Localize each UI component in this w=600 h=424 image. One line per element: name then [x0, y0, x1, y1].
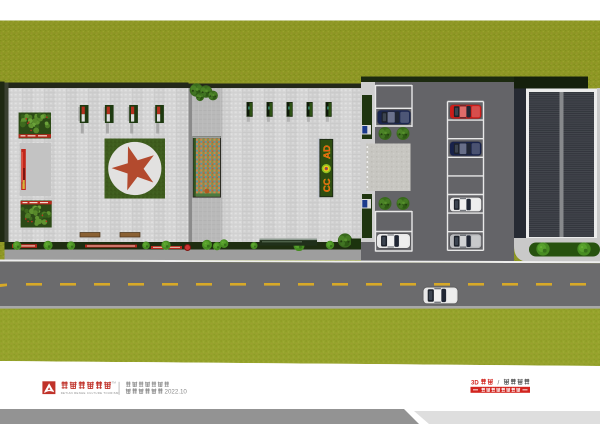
svg-text:3D: 3D [471, 380, 479, 386]
svg-text:2022.10: 2022.10 [165, 389, 188, 396]
svg-text:AD: AD [322, 145, 333, 159]
svg-text:TM: TM [112, 381, 117, 385]
svg-text:CC: CC [322, 178, 333, 192]
svg-text:/: / [498, 380, 500, 387]
svg-text:DETIAN RENHE CULTURE TOURISM: DETIAN RENHE CULTURE TOURISM [61, 391, 119, 395]
